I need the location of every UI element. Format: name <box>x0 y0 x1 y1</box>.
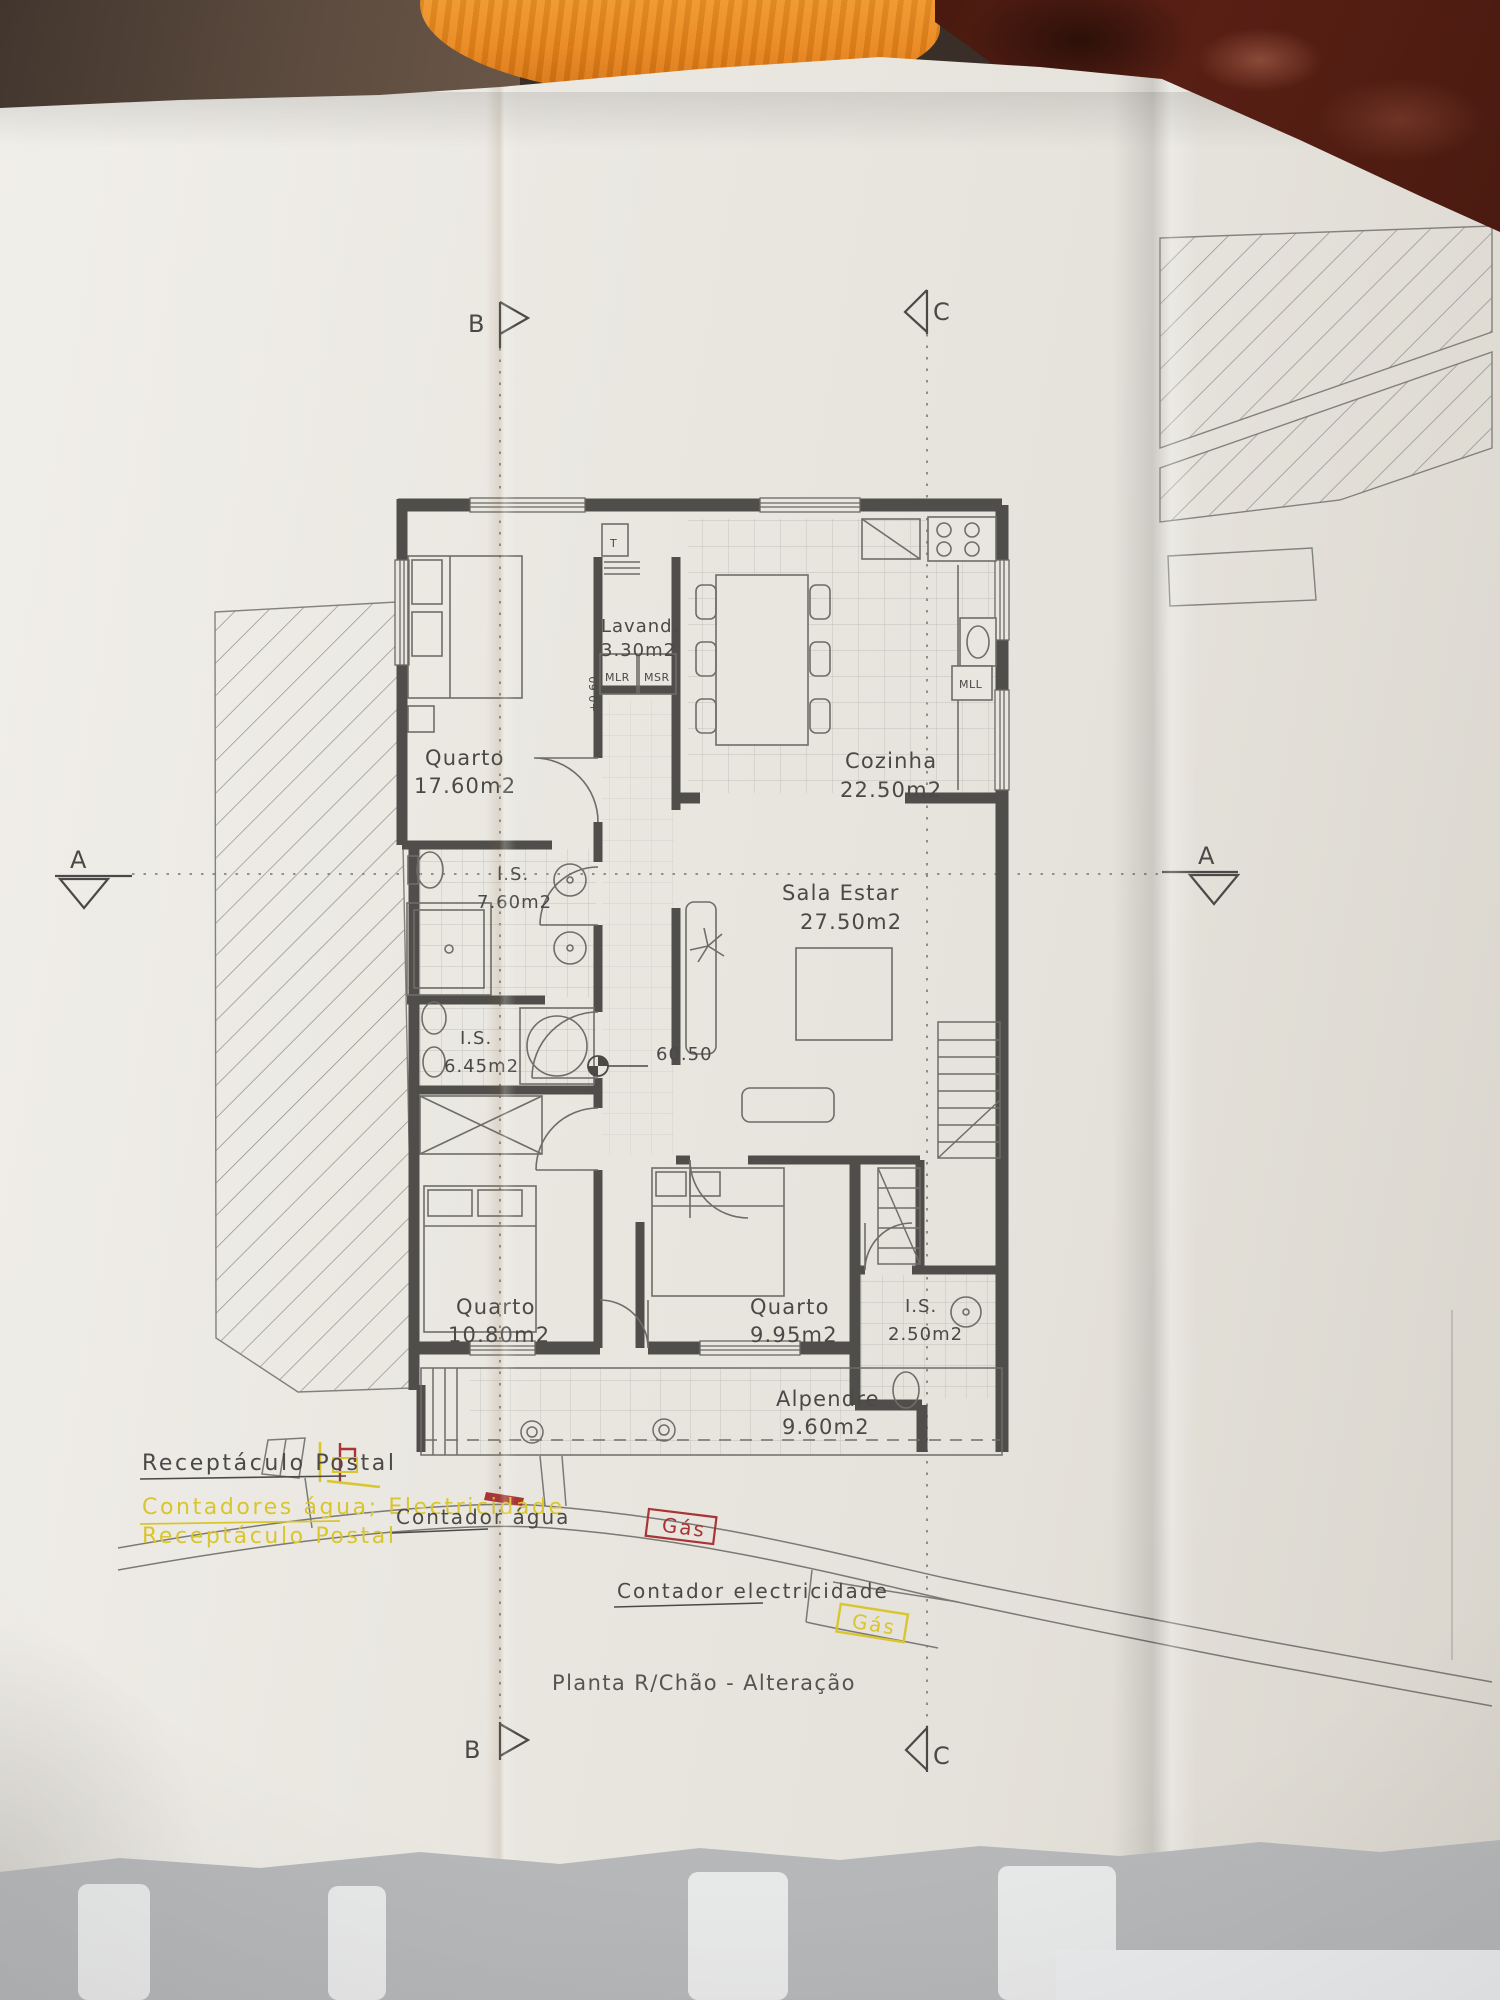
room-label-sala: Sala Estar <box>782 881 900 905</box>
room-area-quarto3: 9.95m2 <box>750 1323 838 1347</box>
living-room-fixtures <box>686 902 892 1122</box>
stairs <box>878 1022 1000 1264</box>
water-meter-label: Contador água <box>396 1505 570 1529</box>
room-label-lavand: Lavand. <box>601 616 679 637</box>
paper-shadow-bottom-left <box>0 1560 260 1880</box>
section-letter-c-bottom: C <box>933 1742 951 1770</box>
chair-leg <box>78 1884 150 2000</box>
room-label-quarto2: Quarto <box>456 1295 536 1319</box>
room-label-cozinha: Cozinha <box>845 749 937 773</box>
dishwasher-label: MLL <box>959 678 983 691</box>
step-level-value: +0.60 <box>587 676 600 712</box>
room-area-quarto2: 10.80m2 <box>448 1323 550 1347</box>
postal-box-label-yellow: Receptáculo Postal <box>142 1524 397 1549</box>
section-letter-b-top: B <box>468 310 485 338</box>
room-label-is2: I.S. <box>460 1028 492 1049</box>
room-area-is2: 6.45m2 <box>444 1056 519 1077</box>
room-area-cozinha: 22.50m2 <box>840 778 942 802</box>
underline-electricity-meter <box>614 1603 763 1607</box>
room-area-quarto1: 17.60m2 <box>414 774 516 798</box>
section-letter-b-bottom: B <box>464 1736 481 1764</box>
room-label-is1: I.S. <box>497 864 529 885</box>
section-letter-c-top: C <box>933 298 951 326</box>
room-label-quarto3: Quarto <box>750 1295 830 1319</box>
underline-postal-gray <box>140 1476 346 1479</box>
yellow-utility-marks: Gás <box>320 1442 908 1642</box>
room-label-is3: I.S. <box>905 1296 937 1317</box>
section-letter-a-left: A <box>70 846 87 874</box>
electricity-meter-label: Contador electricidade <box>617 1579 889 1603</box>
room-label-alpendre: Alpendre <box>776 1387 880 1411</box>
room-area-sala: 27.50m2 <box>800 910 902 934</box>
heater-label: T <box>609 537 617 550</box>
neighbour-hatch-top-right <box>1160 226 1492 606</box>
chair-rail <box>1056 1950 1500 2000</box>
room-area-alpendre: 9.60m2 <box>782 1415 870 1439</box>
photo-of-floor-plan: Gás Gás B C <box>0 0 1500 2000</box>
washer-label: MLR <box>605 671 630 684</box>
neighbour-hatch-left <box>215 602 414 1392</box>
room-label-quarto1: Quarto <box>425 746 505 770</box>
floor-level-value: 60.50 <box>656 1044 713 1065</box>
room-area-is1: 7.60m2 <box>477 892 552 913</box>
postal-box-label-gray: Receptáculo Postal <box>142 1451 397 1476</box>
section-letter-a-right: A <box>1198 842 1215 870</box>
room-area-lavand: 3.30m2 <box>601 640 676 661</box>
room-area-is3: 2.50m2 <box>888 1324 963 1345</box>
dryer-label: MSR <box>644 671 670 684</box>
drawing-paper-sheet: Gás Gás B C <box>0 0 1500 2000</box>
chair-leg <box>688 1872 788 2000</box>
chair-leg <box>328 1886 386 2000</box>
drawing-title: Planta R/Chão - Alteração <box>552 1671 856 1695</box>
